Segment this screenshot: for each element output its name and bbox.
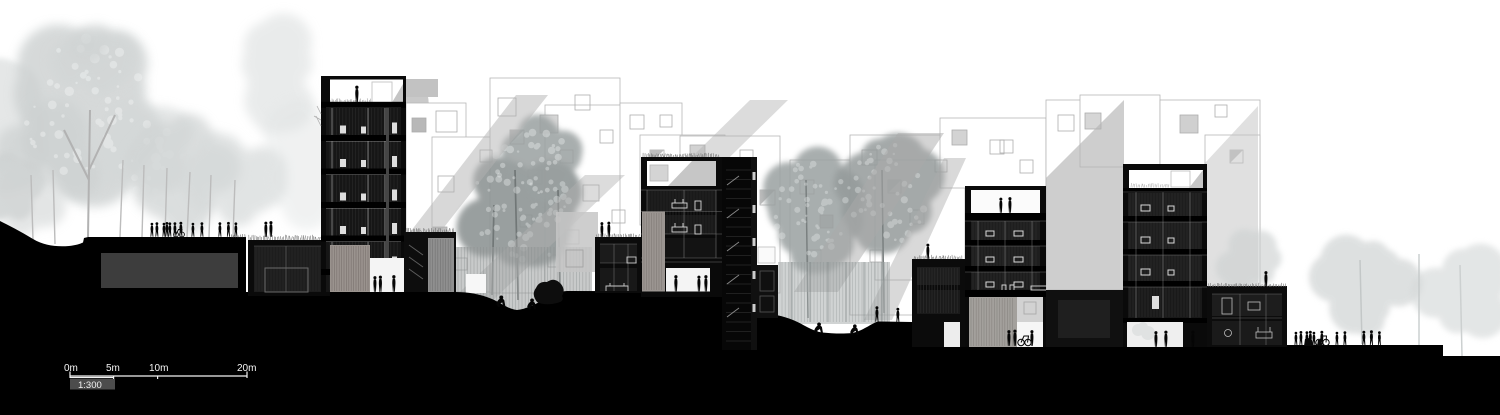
svg-text:5m: 5m (106, 363, 120, 374)
svg-text:0m: 0m (64, 363, 78, 374)
svg-text:10m: 10m (149, 363, 168, 374)
svg-text:1:300: 1:300 (78, 380, 102, 391)
svg-text:20m: 20m (237, 363, 256, 374)
